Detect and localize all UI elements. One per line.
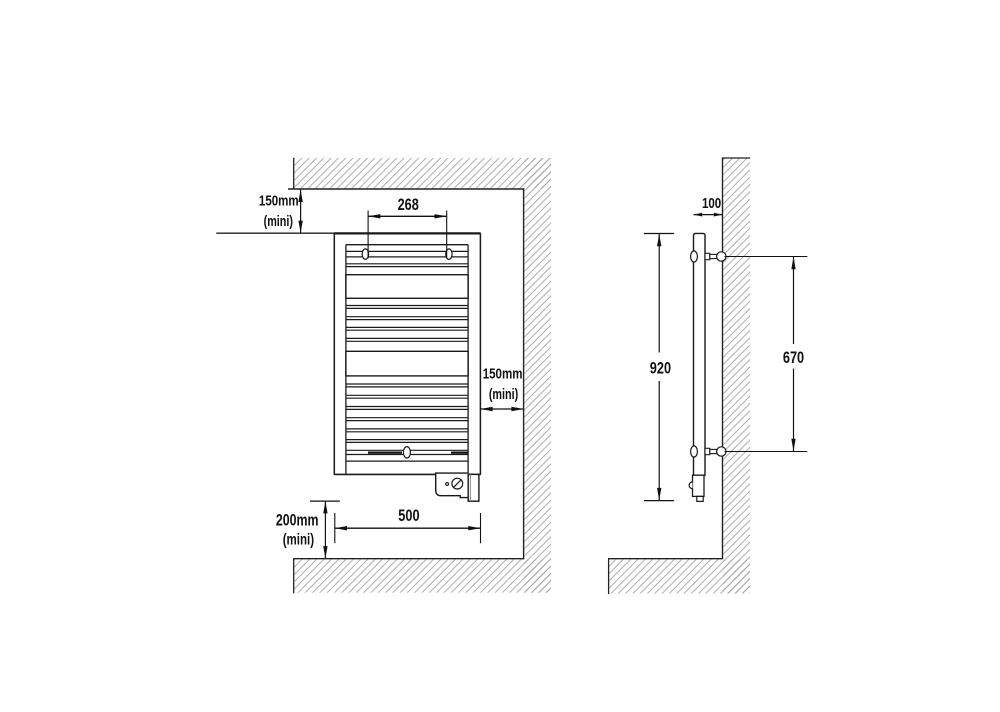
svg-text:200mm: 200mm: [276, 512, 319, 530]
svg-text:(mini): (mini): [283, 529, 314, 547]
svg-text:150mm: 150mm: [483, 365, 523, 382]
svg-text:(mini): (mini): [264, 212, 293, 229]
svg-text:100: 100: [702, 195, 721, 212]
svg-text:150mm: 150mm: [259, 192, 299, 209]
svg-text:268: 268: [398, 195, 419, 214]
svg-text:920: 920: [650, 359, 671, 378]
svg-text:(mini): (mini): [489, 385, 518, 402]
svg-text:500: 500: [398, 506, 419, 525]
svg-text:670: 670: [783, 348, 804, 367]
